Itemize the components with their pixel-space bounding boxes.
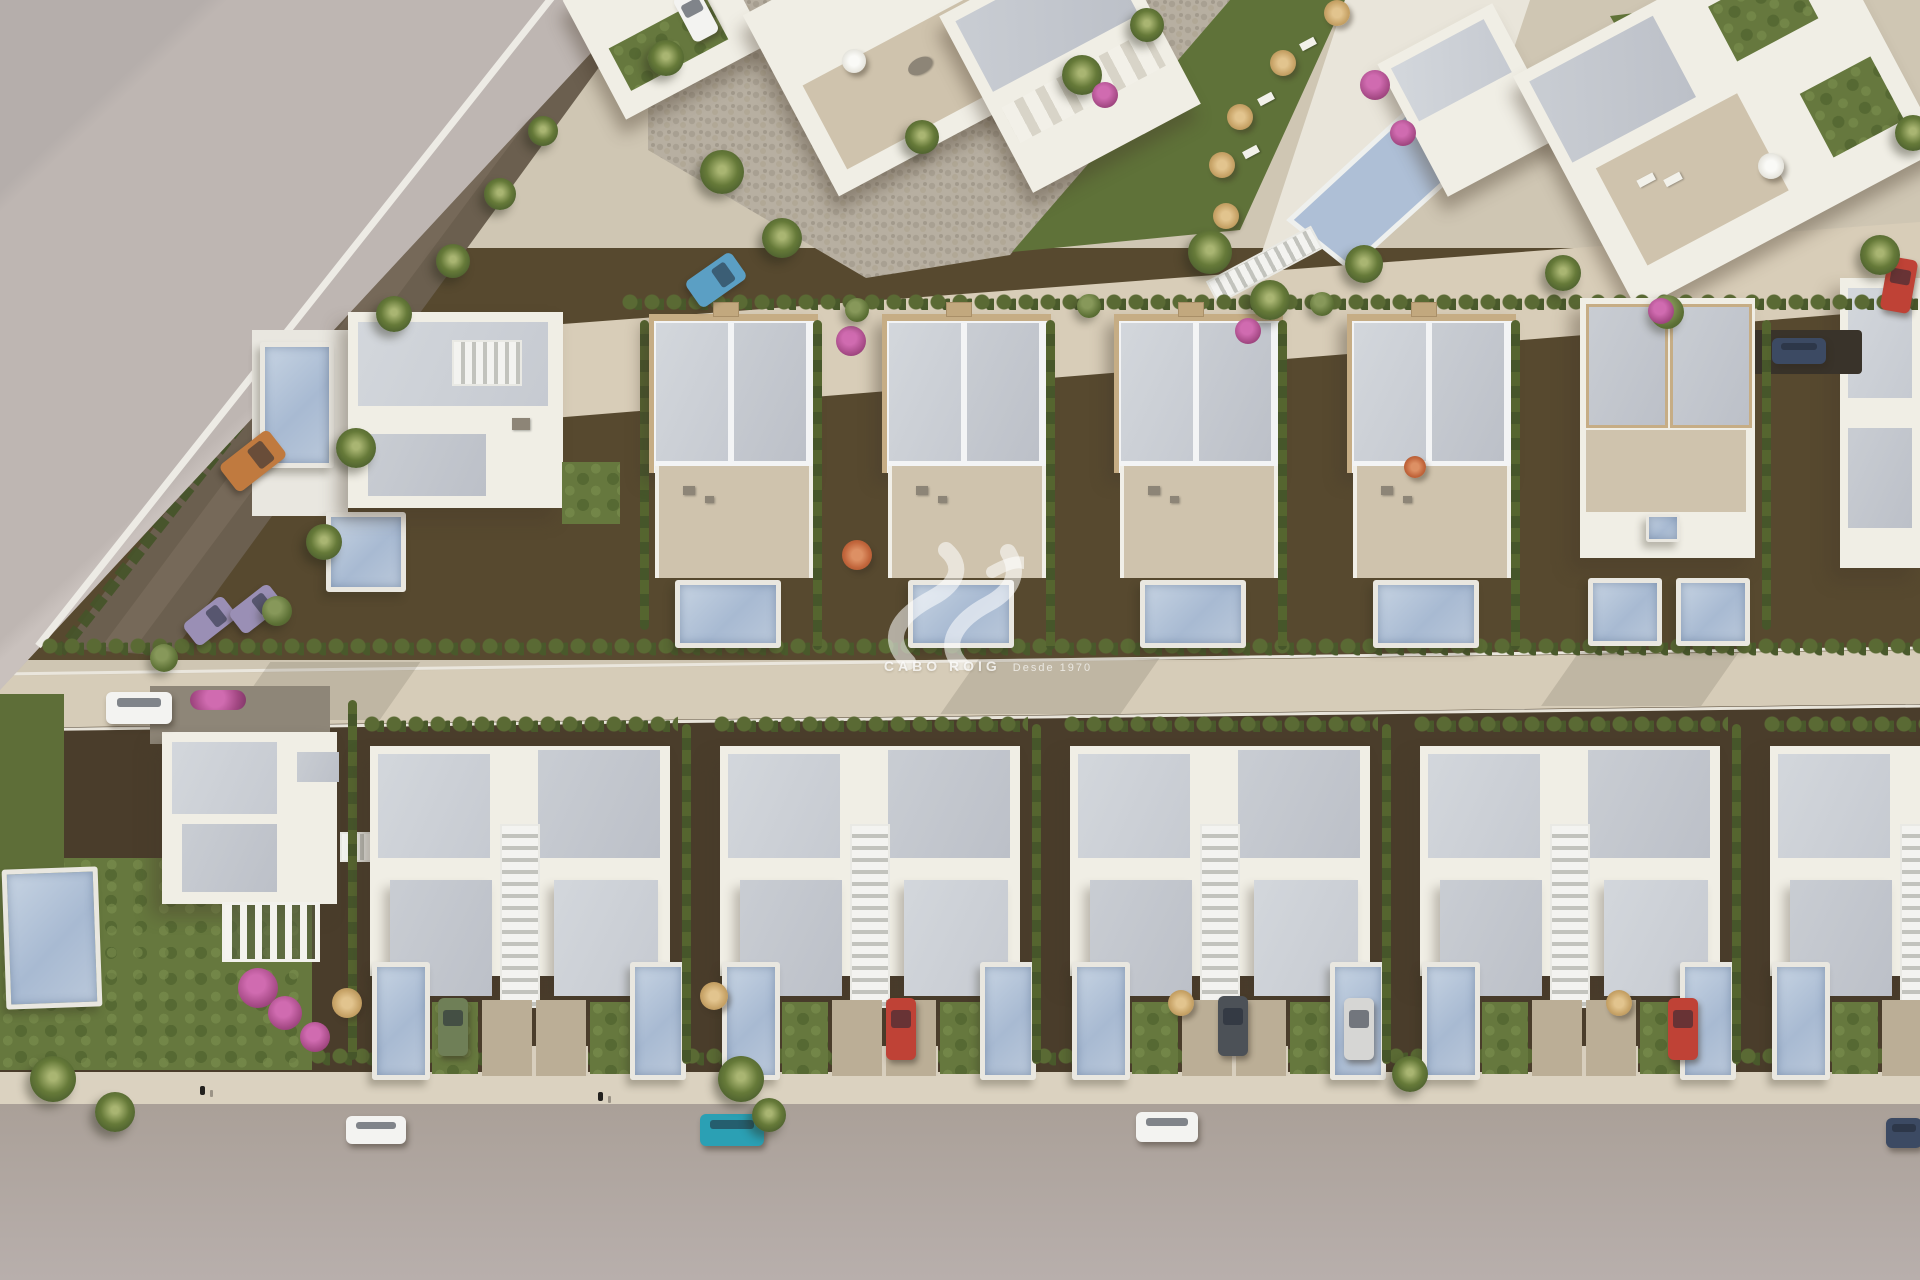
bougainvillea [1390, 120, 1416, 146]
palm-tree [762, 218, 802, 258]
car [438, 998, 468, 1056]
villa-building [720, 746, 1020, 976]
car [1886, 1118, 1920, 1148]
palm-tree [1392, 1056, 1428, 1092]
car [886, 998, 916, 1060]
straw-parasol [1270, 50, 1296, 76]
straw-parasol [1324, 0, 1350, 26]
side-hedge [1732, 724, 1741, 1064]
swimming-pool [1422, 962, 1480, 1080]
palm-tree [1545, 255, 1581, 291]
tree [150, 644, 178, 672]
roof-panel [378, 754, 490, 858]
tree [845, 298, 869, 322]
white-parasol [1758, 153, 1784, 179]
straw-parasol [1209, 152, 1235, 178]
central-staircase [1900, 824, 1920, 1008]
front-lawn [1482, 1002, 1528, 1074]
roof-panel [1588, 750, 1710, 858]
side-hedge [1382, 724, 1391, 1064]
car [346, 1116, 406, 1144]
villa-building [370, 746, 670, 976]
straw-parasol [1606, 990, 1632, 1016]
car [1344, 998, 1374, 1060]
pedestrian [200, 1086, 205, 1095]
villa-building [1770, 746, 1920, 976]
bougainvillea [1360, 70, 1390, 100]
modern-villa-pair [708, 714, 1040, 1078]
side-hedge [682, 724, 691, 1064]
rear-hedge [1062, 714, 1378, 732]
driveway [482, 1000, 532, 1076]
palm-tree [376, 296, 412, 332]
driveway [536, 1000, 586, 1076]
rear-hedge [712, 714, 1028, 732]
swimming-pool [1072, 962, 1130, 1080]
palm-tree [1345, 245, 1383, 283]
palm-tree [905, 120, 939, 154]
palm-tree [1188, 230, 1232, 274]
central-staircase [500, 824, 540, 1008]
bougainvillea [1092, 82, 1118, 108]
palm-tree [1130, 8, 1164, 42]
palm-tree [700, 150, 744, 194]
roof-panel [728, 754, 840, 858]
modern-villa-pair [358, 714, 690, 1078]
palm-tree [1250, 280, 1290, 320]
driveway [1532, 1000, 1582, 1076]
tree [1077, 294, 1101, 318]
tree [1310, 292, 1334, 316]
front-lawn [590, 1002, 634, 1074]
central-staircase [1200, 824, 1240, 1008]
bougainvillea [836, 326, 866, 356]
front-lawn [940, 1002, 984, 1074]
villa-building [1070, 746, 1370, 976]
car [1136, 1112, 1198, 1142]
palm-tree [436, 244, 470, 278]
front-lawn [782, 1002, 828, 1074]
car [1218, 996, 1248, 1056]
swimming-pool [372, 962, 430, 1080]
palm-tree [306, 524, 342, 560]
modern-villa-pair [1758, 714, 1920, 1078]
palm-tree [484, 178, 516, 210]
front-lawn [1832, 1002, 1878, 1074]
palm-tree [30, 1056, 76, 1102]
palm-tree [528, 116, 558, 146]
palm-tree [336, 428, 376, 468]
roof-panel [888, 750, 1010, 858]
straw-parasol [1168, 990, 1194, 1016]
side-hedge [1032, 724, 1041, 1064]
palm-tree [1860, 235, 1900, 275]
aerial-development-render: CABO ROIG Desde 1970 [0, 0, 1920, 1280]
rear-hedge [362, 714, 678, 732]
front-lawn [1132, 1002, 1178, 1074]
swimming-pool [1772, 962, 1830, 1080]
driveway [832, 1000, 882, 1076]
straw-parasol [1213, 203, 1239, 229]
central-staircase [850, 824, 890, 1008]
roof-panel [1238, 750, 1360, 858]
roof-panel [1778, 754, 1890, 858]
bougainvillea [1648, 298, 1674, 324]
palm-tree [752, 1098, 786, 1132]
central-staircase [1550, 824, 1590, 1008]
roof-panel [538, 750, 660, 858]
car [1772, 338, 1826, 364]
bougainvillea [1235, 318, 1261, 344]
rear-hedge [1762, 714, 1920, 732]
swimming-pool [980, 962, 1036, 1080]
palm-tree [95, 1092, 135, 1132]
driveway [1882, 1000, 1920, 1076]
white-parasol [842, 49, 866, 73]
tree [262, 596, 292, 626]
straw-parasol [1227, 104, 1253, 130]
swimming-pool [630, 962, 686, 1080]
front-lawn [1290, 1002, 1334, 1074]
pedestrian [598, 1092, 603, 1101]
bottom-villa-row [0, 0, 1920, 1280]
car [1668, 998, 1698, 1060]
palm-tree [648, 40, 684, 76]
palm-tree [718, 1056, 764, 1102]
roof-panel [1428, 754, 1540, 858]
rear-hedge [1412, 714, 1728, 732]
straw-parasol [700, 982, 728, 1010]
roof-panel [1078, 754, 1190, 858]
villa-building [1420, 746, 1720, 976]
